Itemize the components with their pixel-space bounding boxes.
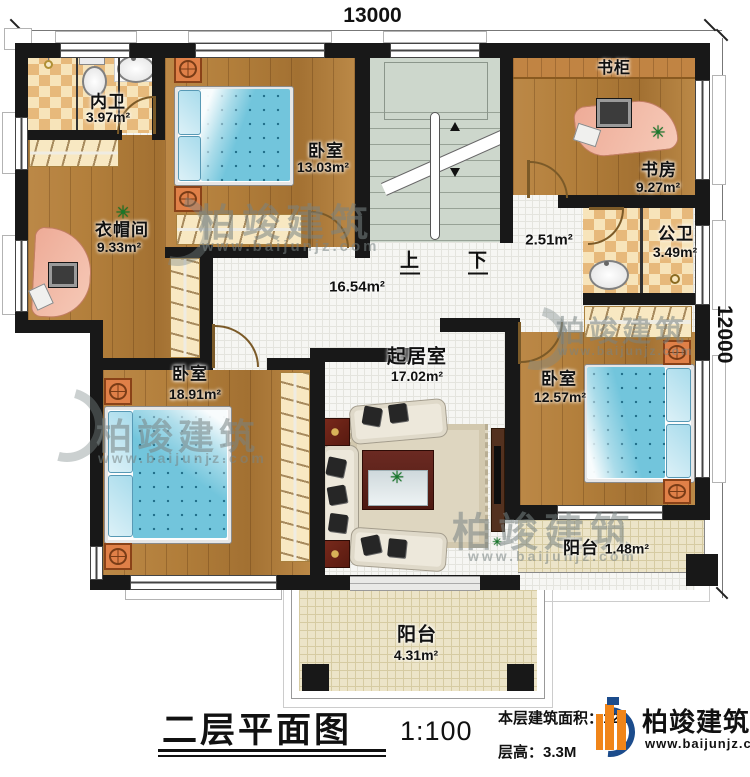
wall-bath-bottom	[28, 130, 122, 140]
mattress	[201, 89, 290, 181]
title-underline	[158, 749, 386, 752]
column	[507, 664, 534, 691]
pillow	[666, 368, 691, 422]
nightstand-knob	[179, 191, 197, 207]
nightstand	[663, 479, 691, 504]
pillow	[178, 136, 201, 181]
door-leaf-study	[527, 160, 530, 198]
sink-basin	[589, 260, 629, 290]
window-sill	[55, 31, 137, 43]
room-label-bedroom-right: 卧室	[541, 365, 577, 390]
window	[15, 117, 28, 170]
stair-label-down: 下	[468, 246, 488, 275]
wall-bath-public-divider	[640, 208, 643, 293]
sofa-cushion	[360, 534, 381, 555]
ceiling-lamp-icon	[44, 60, 53, 69]
room-label-cloakroom: 衣帽间	[95, 216, 149, 241]
plan-scale: 1:100	[400, 716, 473, 747]
room-label-balcony-small: 阳台 1.48m²	[563, 534, 649, 559]
window	[195, 43, 325, 58]
label-bookcase: 书柜	[597, 54, 631, 78]
room-label-bedroom-left: 卧室	[172, 360, 208, 385]
wardrobe	[170, 258, 200, 358]
nightstand	[663, 340, 691, 365]
brand-logo-building	[617, 710, 626, 750]
wall-bedroom-left-living	[310, 358, 325, 575]
nightstand-knob	[668, 345, 686, 360]
brand-website: www.baijunjz.com	[645, 736, 750, 751]
window	[90, 546, 103, 580]
nightstand-knob	[109, 548, 127, 565]
sink-tap-icon	[604, 261, 609, 266]
door-leaf-bath-private	[153, 96, 156, 134]
stair-rail	[430, 112, 440, 240]
room-label-living: 起居室	[387, 342, 447, 369]
balcony-small-name: 阳台	[563, 539, 599, 558]
wall-bedroom-stair	[355, 43, 370, 258]
plant-icon: ✳	[492, 535, 502, 549]
nightstand	[104, 378, 132, 405]
room-area-bath-private: 3.97m²	[86, 109, 130, 125]
sofa-cushion	[327, 485, 348, 506]
door-leaf-bedroom-top	[308, 210, 311, 248]
room-area-bath-public: 3.49m²	[653, 244, 697, 260]
room-label-bedroom-top: 卧室	[308, 137, 344, 162]
tv-icon	[494, 446, 501, 504]
mattress	[133, 410, 227, 538]
sink-basin	[117, 55, 155, 83]
door-leaf-bedroom-right	[518, 322, 521, 364]
stair-label-up: 上	[400, 246, 420, 275]
plan-title: 二层平面图	[162, 702, 352, 753]
floor-drain-icon	[670, 274, 680, 284]
brand-name: 柏竣建筑	[642, 702, 750, 739]
dim-width: 13000	[330, 4, 415, 28]
stair-arrow-up-icon	[450, 122, 460, 131]
plant-icon: ✳	[390, 468, 404, 488]
floor-plan: 13000 12000	[0, 0, 750, 777]
window-sill	[2, 235, 16, 315]
nightstand	[174, 55, 202, 83]
window	[695, 80, 710, 180]
door-leaf-bath-public	[589, 207, 624, 210]
computer-monitor-icon	[48, 262, 78, 288]
wardrobe	[176, 214, 302, 245]
window-sill	[188, 31, 332, 43]
room-area-bedroom-left: 18.91m²	[169, 386, 221, 402]
nightstand	[174, 186, 202, 212]
window-sill	[712, 220, 726, 310]
brand-logo-building	[605, 704, 614, 750]
room-label-bath-public: 公卫	[658, 220, 694, 245]
wall-bath-public-bottom	[583, 293, 695, 305]
wall-shower-partition	[76, 53, 78, 130]
wardrobe	[280, 372, 310, 562]
room-area-corridor: 2.51m²	[525, 232, 573, 249]
room-area-balcony-large: 4.31m²	[394, 647, 438, 663]
brand-logo-roof	[607, 697, 619, 705]
wardrobe	[29, 139, 119, 167]
wardrobe	[584, 306, 692, 338]
window	[557, 505, 663, 520]
sofa-cushion	[328, 513, 348, 533]
balcony-threshold	[350, 576, 480, 591]
computer-monitor-icon	[596, 98, 632, 128]
nightstand-knob	[109, 383, 127, 400]
exterior-notch	[15, 333, 90, 590]
column	[686, 554, 718, 586]
balcony-small-area: 1.48m²	[605, 541, 649, 557]
wall-bedroom-top-bottom	[165, 247, 308, 258]
pillow	[666, 424, 691, 478]
window	[695, 360, 710, 478]
room-area-living: 17.02m²	[391, 368, 443, 384]
pillow	[108, 475, 133, 537]
window	[130, 575, 277, 590]
window-sill	[383, 31, 487, 43]
sofa-cushion	[387, 538, 407, 558]
sofa-cushion	[362, 406, 383, 427]
room-area-cloakroom: 9.33m²	[97, 239, 141, 255]
sofa-cushion	[325, 456, 346, 477]
room-area-study: 9.27m²	[636, 179, 680, 195]
window	[60, 43, 130, 58]
room-area-bedroom-right: 12.57m²	[534, 389, 586, 405]
stair-arrow-down-icon	[450, 168, 460, 177]
wall-study-bottom	[558, 195, 695, 208]
window-sill	[712, 75, 726, 185]
room-area-bedroom-top: 13.03m²	[297, 159, 349, 175]
floor-height-text: 层高：3.3M	[498, 741, 576, 762]
pillow	[178, 90, 201, 135]
nightstand	[104, 543, 132, 570]
window	[15, 240, 28, 312]
sofa-cushion	[388, 403, 408, 423]
window-sill	[2, 112, 16, 174]
wall-stair-study	[500, 43, 513, 243]
title-underline	[158, 755, 386, 757]
nightstand-knob	[668, 484, 686, 499]
dim-height: 12000	[712, 305, 736, 425]
plant-icon: ✳	[650, 123, 665, 144]
brand-logo-building	[596, 714, 603, 750]
room-area-hall: 16.54m²	[329, 279, 385, 296]
mattress	[587, 367, 665, 478]
pillow	[108, 411, 133, 473]
window	[695, 225, 710, 305]
room-label-balcony-large: 阳台	[397, 620, 437, 647]
window	[390, 43, 480, 58]
room-label-study: 书房	[641, 156, 677, 181]
nightstand-knob	[179, 60, 197, 78]
door-leaf-bedroom-left	[212, 324, 215, 368]
column	[302, 664, 329, 691]
